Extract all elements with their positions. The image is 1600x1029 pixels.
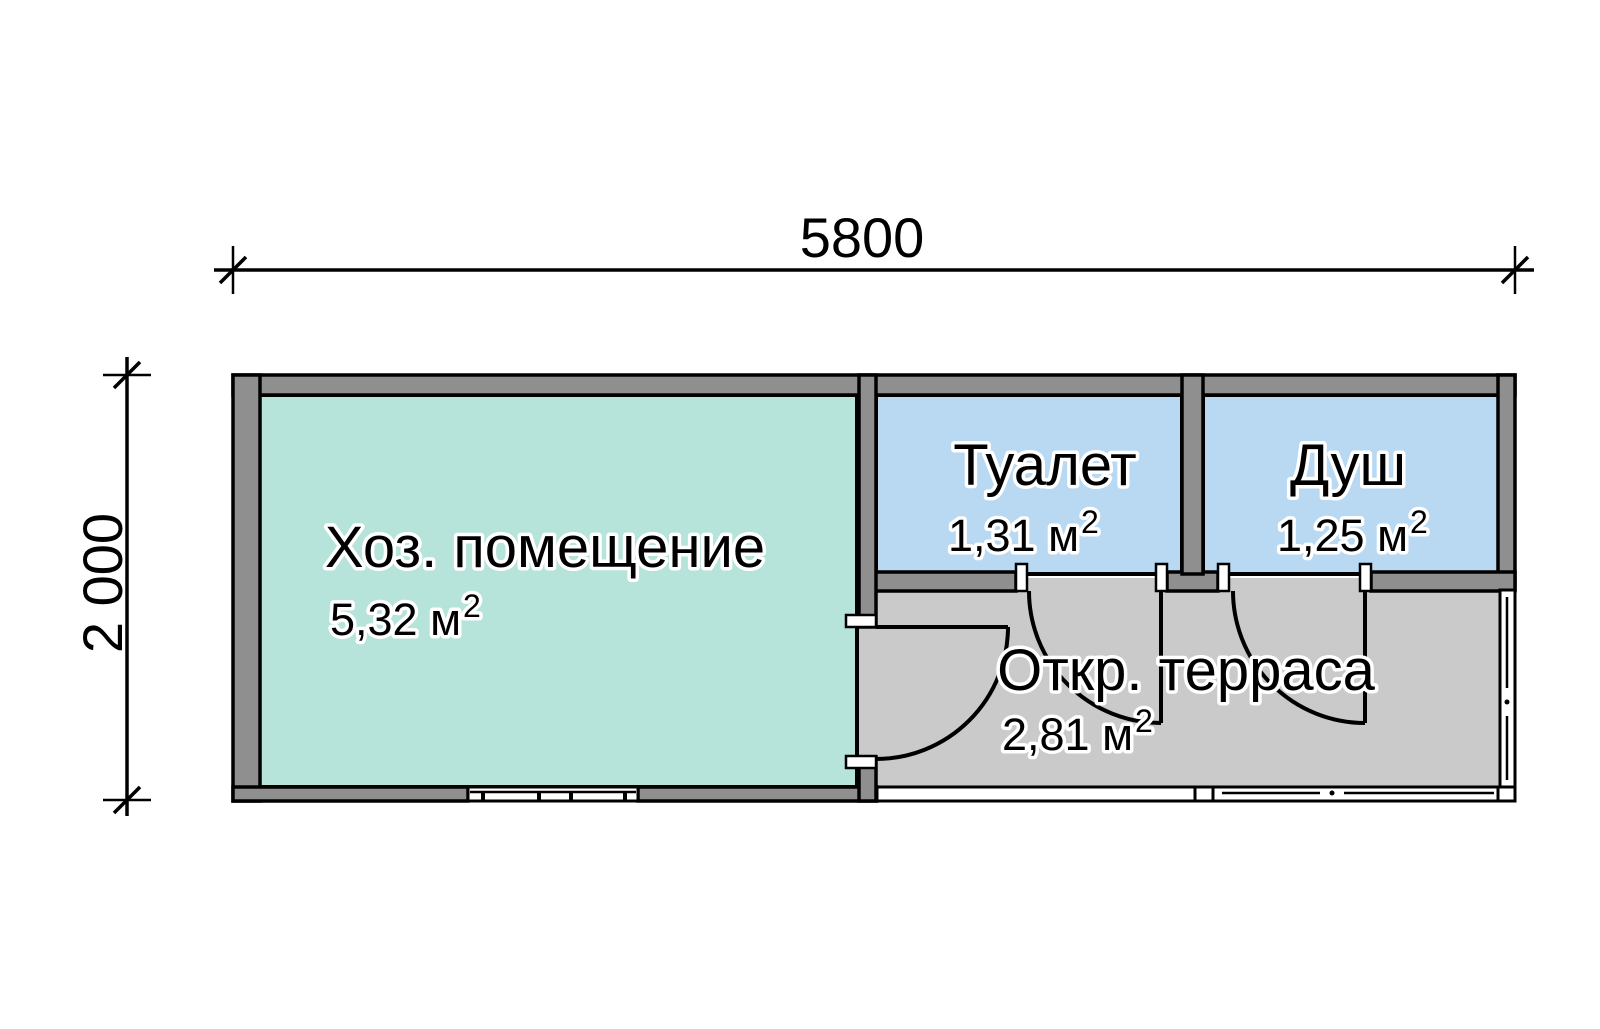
utility-door-jamb-top [846, 615, 876, 627]
area-value: 1,31 м [948, 510, 1079, 561]
toilet-door-jamb-left [1016, 564, 1027, 591]
right-wall [1498, 375, 1515, 590]
utility-room-name: Хоз. помещение [325, 515, 765, 580]
terrace-area: 2,81 м2 [1002, 703, 1153, 760]
area-superscript: 2 [1081, 504, 1099, 540]
width-dimension-label: 5800 [800, 206, 925, 269]
terrace-bottom-edge-left [877, 787, 1195, 801]
utility-partition-wall-upper [859, 375, 876, 627]
terrace-corner-post [1498, 787, 1515, 801]
height-dimension-label: 2 000 [71, 513, 134, 653]
utility-room-floor [258, 395, 857, 787]
area-value: 5,32 м [330, 594, 461, 645]
wet-rooms-front-wall-left [857, 572, 1016, 591]
wet-rooms-front-wall-right [1371, 572, 1515, 591]
area-value: 2,81 м [1002, 709, 1133, 760]
window [468, 787, 638, 801]
bottom-wall-right-of-window [638, 787, 877, 801]
area-superscript: 2 [463, 588, 481, 624]
shower-room-area: 1,25 м2 [1277, 504, 1428, 561]
toilet-door-jamb-right [1156, 564, 1167, 591]
terrace-name: Откр. терраса [997, 638, 1375, 703]
terrace-centerline-dot [1330, 791, 1335, 796]
bottom-wall-left-of-window [233, 787, 468, 801]
utility-room-area: 5,32 м2 [330, 588, 481, 645]
shower-door-jamb-left [1218, 564, 1229, 591]
window-frame [468, 787, 638, 801]
floor-plan-page: 5800 2 000 [0, 0, 1600, 1029]
area-superscript: 2 [1410, 504, 1428, 540]
area-value: 1,25 м [1277, 510, 1408, 561]
toilet-room-name: Туалет [953, 433, 1137, 498]
utility-door-jamb-bottom [846, 756, 876, 768]
left-wall [233, 375, 260, 801]
area-superscript: 2 [1135, 703, 1153, 739]
toilet-shower-partition-wall [1182, 375, 1203, 574]
shower-room-name: Душ [1290, 433, 1406, 498]
terrace-centerline-dot [1505, 700, 1510, 705]
terrace-edge-post [1195, 787, 1213, 801]
floor-plan-drawing: 5800 2 000 [0, 0, 1600, 1029]
shower-door-jamb-right [1360, 564, 1371, 591]
toilet-room-area: 1,31 м2 [948, 504, 1099, 561]
